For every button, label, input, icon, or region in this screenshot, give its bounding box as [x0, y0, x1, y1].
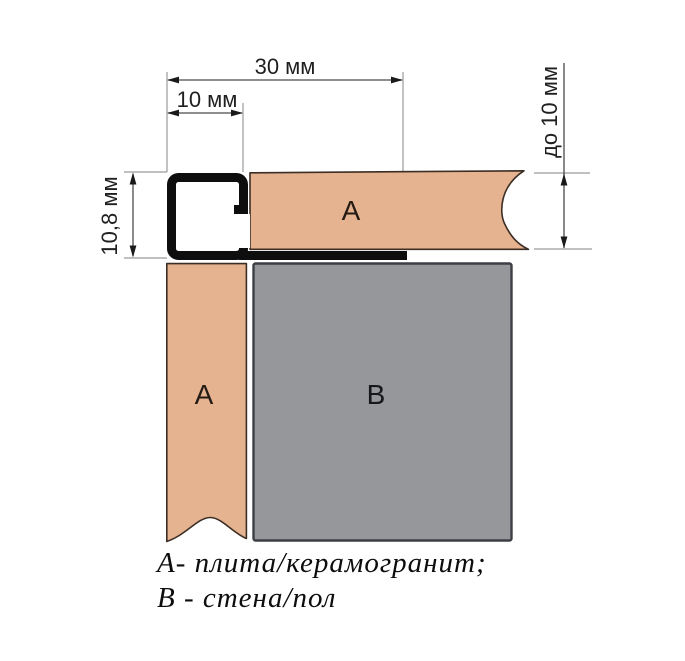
dim-label-10mm: 10 мм: [157, 88, 257, 112]
dim-label-do-10mm: до 10 мм: [538, 57, 562, 167]
profile-ring: [172, 178, 244, 256]
profile-hook: [234, 205, 248, 214]
legend-line-b: В - стена/пол: [157, 581, 487, 616]
profile-flange: [239, 251, 407, 260]
zone-label-tile-side: А: [184, 380, 224, 410]
profile-diagram: 30 мм 10 мм 10,8 мм до 10 мм А А В А- пл…: [0, 0, 685, 661]
tile-top-shape: [250, 171, 529, 250]
profile-ring-gap: [238, 214, 250, 248]
legend-line-a: А- плита/керамогранит;: [157, 546, 487, 581]
zone-label-base: В: [356, 380, 396, 410]
zone-label-tile-top: А: [331, 196, 371, 226]
dim-label-10-8mm: 10,8 мм: [98, 166, 122, 266]
dim-label-30mm: 30 мм: [235, 55, 335, 79]
legend: А- плита/керамогранит; В - стена/пол: [157, 546, 487, 616]
